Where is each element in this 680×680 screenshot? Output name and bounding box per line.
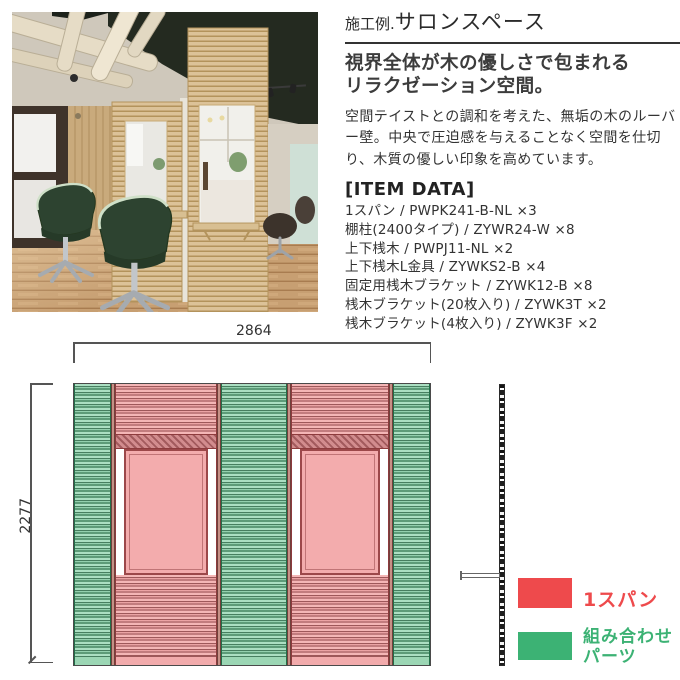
legend-swatch-combo — [518, 632, 572, 660]
wall-elevation — [73, 383, 431, 666]
text-column: 施工例.サロンスペース 視界全体が木の優しさで包まれる リラクゼーション空間。 … — [345, 0, 680, 334]
item-data-line: 棚柱(2400タイプ) / ZYWR24-W ×8 — [345, 221, 680, 240]
height-dimension-label: 2277 — [18, 498, 34, 534]
item-data-heading: [ITEM DATA] — [345, 179, 680, 200]
width-dim-tick-left — [73, 342, 75, 363]
title-underline — [345, 42, 680, 44]
height-dim-tick-bottom — [30, 662, 53, 664]
wall-section-combo — [74, 384, 111, 665]
right-area — [263, 124, 318, 258]
side-view-post — [499, 384, 505, 666]
louver-panel-right — [188, 28, 268, 312]
wall-section-span — [115, 384, 217, 665]
height-dimension-line — [30, 383, 32, 663]
side-view-bracket — [461, 573, 500, 578]
legend-label-span: 1スパン — [583, 585, 658, 612]
wall-section-span — [291, 384, 389, 665]
title-main: サロンスペース — [395, 10, 546, 34]
counter-shelf-right — [193, 223, 259, 230]
item-data-line: 上下桟木L金具 / ZYWKS2-B ×4 — [345, 258, 680, 277]
legend-swatch-span — [518, 578, 572, 608]
mirror-opening — [300, 449, 380, 575]
item-data-line: 1スパン / PWPK241-B-NL ×3 — [345, 202, 680, 221]
width-dimension-line — [73, 342, 431, 344]
title-prefix: 施工例. — [345, 15, 395, 33]
wall-section-combo — [221, 384, 287, 665]
item-data-line: 桟木ブラケット(4枚入り) / ZYWK3F ×2 — [345, 315, 680, 334]
item-data-line: 桟木ブラケット(20枚入り) / ZYWK3T ×2 — [345, 296, 680, 315]
legend-label-combo: 組み合わせ パーツ — [583, 627, 673, 667]
subtitle: 視界全体が木の優しさで包まれる リラクゼーション空間。 — [345, 52, 680, 99]
width-dim-tick-right — [430, 342, 432, 363]
salon-photo — [12, 12, 318, 312]
width-dimension-label: 2864 — [236, 323, 272, 339]
height-dim-tick-top — [30, 383, 53, 385]
mirror-opening — [124, 449, 208, 575]
description: 空間テイストとの調和を考えた、無垢の木のルーバー壁。中央で圧迫感を与えることなく… — [345, 107, 680, 171]
chair-right-silhouette — [263, 213, 297, 239]
spotlight — [70, 74, 78, 82]
item-data-line: 固定用桟木ブラケット / ZYWK12-B ×8 — [345, 277, 680, 296]
side-view-bracket-cap — [460, 571, 462, 580]
page-title: 施工例.サロンスペース — [345, 6, 680, 36]
item-data-line: 上下桟木 / PWPJ11-NL ×2 — [345, 240, 680, 259]
page: 施工例.サロンスペース 視界全体が木の優しさで包まれる リラクゼーション空間。 … — [0, 0, 680, 680]
wall-section-combo — [393, 384, 430, 665]
item-data-list: 1スパン / PWPK241-B-NL ×3棚柱(2400タイプ) / ZYWR… — [345, 202, 680, 334]
